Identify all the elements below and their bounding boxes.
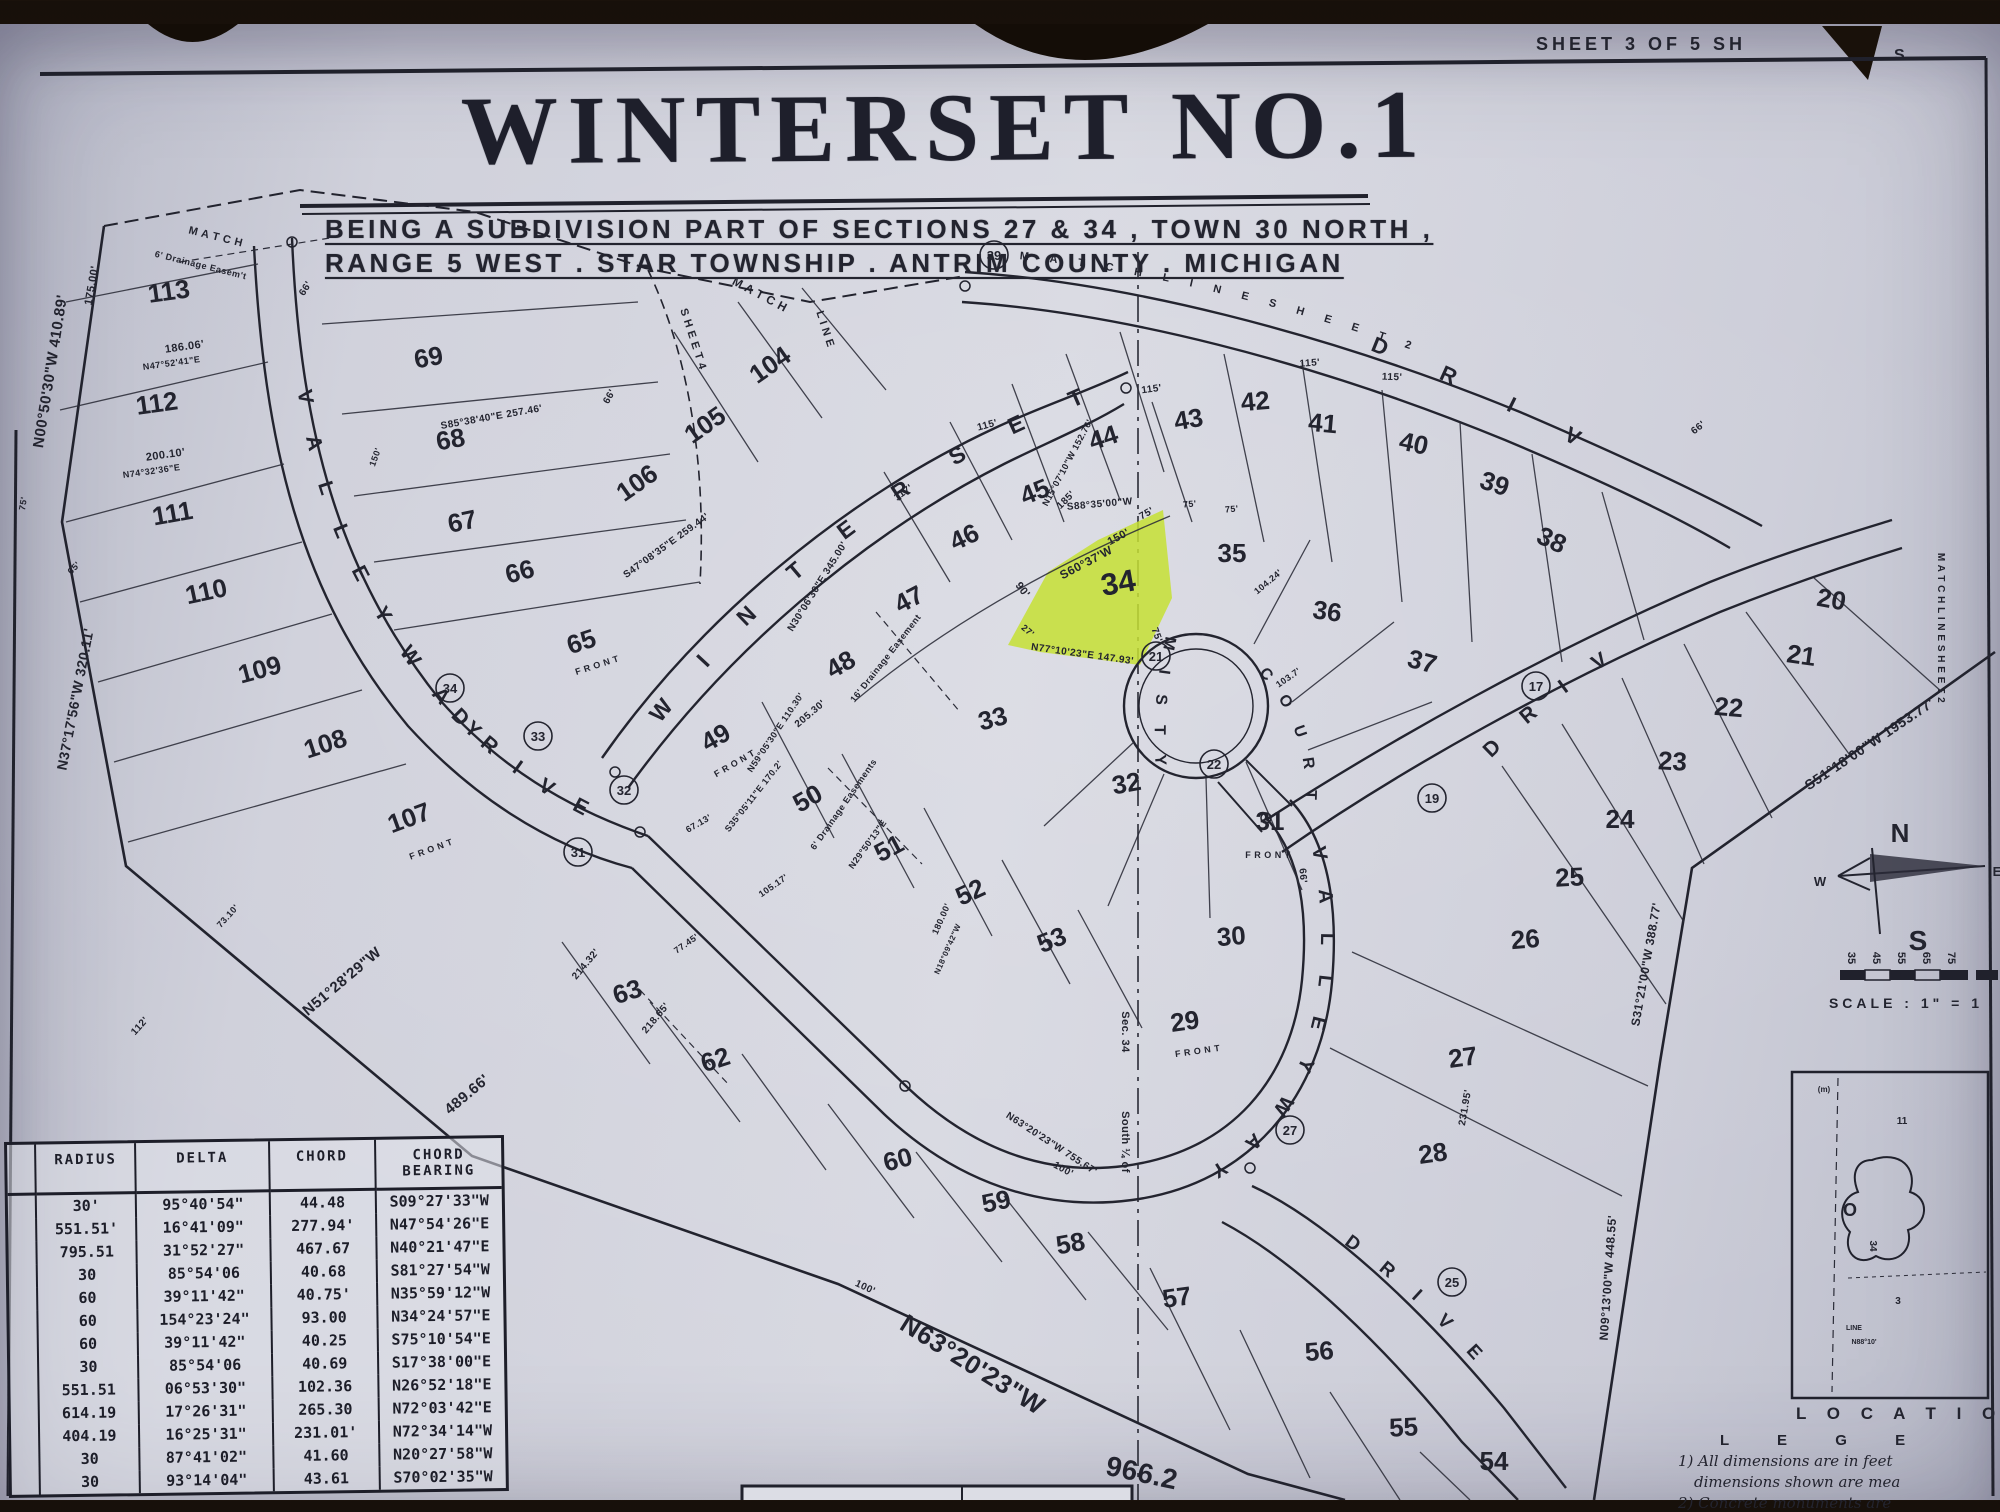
curve-table-cell (10, 1380, 39, 1403)
curve-table-cell: 60 (39, 1332, 140, 1356)
curve-table-cell: S70°02'35"W (380, 1465, 506, 1490)
curve-table-cell: 265.30 (273, 1398, 379, 1422)
curve-table-cell: 39°11'42" (139, 1330, 272, 1355)
lot-number-107: 107 (383, 796, 434, 839)
inset-text: 34 (1867, 1240, 1878, 1252)
curve-marker-34: 34 (443, 681, 458, 696)
curve-table-header-cell: DELTA (136, 1141, 270, 1194)
bottom-partial-box (742, 1486, 1132, 1500)
legend-note-3: 2) Concrete monuments are (1678, 1494, 2000, 1512)
curve-table-cell: 30 (40, 1447, 141, 1471)
lot-number-39: 39 (1476, 465, 1513, 502)
bearing-label: 103.7' (1274, 666, 1302, 690)
lot-number-21: 21 (1785, 638, 1818, 672)
street-label-text: C O U R T (1256, 665, 1319, 808)
curve-marker-39: 39 (987, 248, 1001, 263)
curve-marker-33: 33 (531, 729, 545, 744)
bearing-label: 73.10' (215, 902, 241, 929)
scale-bar: 3545556575 SCALE : 1" = 1 (1829, 952, 1998, 1011)
bearing-label: 115' (1141, 383, 1163, 397)
curve-table-cell: 93.00 (272, 1306, 378, 1330)
legend-note-2: dimensions shown are mea (1694, 1473, 2000, 1491)
bearing-label: S31°21'00"W 388.77' (1628, 901, 1664, 1027)
curve-table-cell: S17°38'00"E (379, 1350, 505, 1375)
lot-number-34: 34 (1098, 562, 1139, 603)
curve-table-cell: 154°23'24" (139, 1307, 272, 1332)
bearing-label: 75' (1225, 503, 1239, 514)
street-label-text: V A L L E Y W A Y (1198, 845, 1338, 1188)
curve-table-cell: 60 (38, 1286, 139, 1310)
bearing-label: 66' (297, 279, 314, 298)
scale-tick-45: 45 (1870, 952, 1882, 964)
curve-table-cell: N34°24'57"E (378, 1304, 504, 1329)
lot-number-112: 112 (134, 385, 180, 421)
lot-number-54: 54 (1480, 1446, 1509, 1476)
street-label-7: D R I V E (1341, 1231, 1494, 1373)
lot-number-58: 58 (1054, 1226, 1088, 1261)
inset-text: N88°10' (1851, 1338, 1876, 1346)
legend-note-1: 1) All dimensions are in feet (1678, 1452, 2000, 1470)
lot-number-25: 25 (1554, 861, 1584, 892)
curve-table-cell: 467.67 (271, 1237, 377, 1261)
bearing-label: 489.66' (441, 1071, 492, 1118)
curve-table-cell: 87°41'02" (141, 1445, 274, 1470)
lot-number-27: 27 (1446, 1040, 1479, 1074)
lot-number-22: 22 (1713, 691, 1744, 723)
bearing-label: S51°18'00"W 1953.77' (1801, 695, 1937, 794)
lot-number-111: 111 (150, 495, 195, 532)
curve-table-header-row: RADIUSDELTACHORDCHORDBEARING (7, 1138, 502, 1196)
lot-number-49: 49 (695, 717, 735, 757)
curve-table-cell (12, 1472, 41, 1495)
curve-table-cell: 60 (38, 1309, 139, 1333)
lot-number-47: 47 (889, 579, 929, 619)
bearing-label: 75' (17, 496, 29, 511)
bearing-label: 67.13' (684, 812, 713, 834)
compass-east-label: E (1993, 864, 2000, 879)
curve-table-cell: 551.51 (39, 1378, 140, 1402)
lot-number-26: 26 (1510, 923, 1541, 955)
curve-table-cell: 39°11'42" (138, 1284, 271, 1309)
curve-table-cell: 551.51' (37, 1217, 138, 1241)
bearing-label: Sec. 34 (1119, 1011, 1131, 1053)
lot-number-113: 113 (146, 273, 192, 309)
curve-table-cell (11, 1403, 40, 1426)
legend-title: L E G E (1720, 1432, 2000, 1449)
curve-table-cell: 102.36 (273, 1375, 379, 1399)
bearing-label: 66' (601, 387, 618, 406)
street-label-9: C O U R T (1256, 665, 1319, 808)
lot-number-106: 106 (610, 458, 663, 507)
folded-corner (1822, 26, 1882, 80)
bearing-label: S88°35'00"W (1066, 496, 1133, 513)
inset-text: LINE (1846, 1325, 1862, 1332)
bearing-label: N74°32'36"E (122, 462, 181, 480)
curve-marker-27: 27 (1283, 1123, 1297, 1138)
curve-table-cell (9, 1288, 38, 1311)
curve-table-cell (10, 1334, 39, 1357)
location-inset: 11(m)O343LINEN88°10' (1792, 1072, 1988, 1398)
lot-number-57: 57 (1160, 1280, 1193, 1314)
legend-notes: L O C A T I O L E G E 1) All dimensions … (1678, 1404, 2000, 1512)
lot-number-23: 23 (1657, 745, 1687, 776)
street-label-text: D R I V E (1341, 1231, 1494, 1373)
lot-number-48: 48 (820, 644, 860, 684)
bearing-label: 77.45' (672, 932, 700, 956)
lot-number-43: 43 (1172, 402, 1206, 437)
lot-number-50: 50 (787, 778, 827, 818)
bearing-label: South ¼ of (1119, 1111, 1131, 1173)
bearing-label: 105.17' (757, 872, 790, 899)
lot-number-55: 55 (1388, 1411, 1418, 1442)
bearing-label: 214.32' (570, 947, 602, 982)
curve-marker-19: 19 (1425, 791, 1439, 806)
curve-table-cell: 404.19 (40, 1424, 141, 1448)
curve-table-header-cell (7, 1145, 37, 1196)
curve-table-cell: N40°21'47"E (377, 1235, 503, 1260)
inset-text-group: 11(m)O343LINEN88°10' (1818, 1085, 1908, 1346)
bearing-label: N63°20'23"W (895, 1308, 1050, 1421)
curve-table-cell: N72°03'42"E (379, 1396, 505, 1421)
lot-number-108: 108 (300, 722, 351, 764)
bearing-label: M A T C H L I N E S H E E T 2 (1935, 553, 1946, 703)
curve-table-cell (8, 1219, 37, 1242)
bearing-label: 115' (1382, 372, 1403, 384)
bearing-label: 65' (66, 560, 83, 577)
curve-table-cell: N35°59'12"W (378, 1281, 504, 1306)
bearing-label: 115' (1299, 357, 1320, 369)
curve-table-cell: 40.69 (273, 1352, 379, 1376)
curve-table-cell: N20°27'58"W (380, 1442, 506, 1467)
lot-number-65: 65 (563, 623, 600, 660)
photo-of-plat: { "page": { "sheet_label": "SHEET 3 OF 5… (0, 0, 2000, 1500)
scale-tick-35: 35 (1845, 952, 1857, 964)
bearing-label: S47°08'35"E 259.44' (622, 511, 712, 580)
lot-number-28: 28 (1416, 1136, 1449, 1170)
curve-table-cell: 40.68 (271, 1260, 377, 1284)
scale-tick-55: 55 (1895, 952, 1907, 964)
lot-number-33: 33 (975, 700, 1011, 736)
scale-tick-75: 75 (1945, 952, 1957, 964)
curve-table-cell: N47°54'26"E (377, 1212, 503, 1237)
curve-table-cell: 277.94' (271, 1214, 377, 1238)
lot-number-60: 60 (880, 1141, 916, 1177)
curve-table-cell (9, 1311, 38, 1334)
street-label-3: M A T C H L I N E S H E E T 2 (1019, 250, 1421, 355)
bearing-label: 16' Drainage Easement (848, 612, 923, 704)
bearing-label: F R O N T (408, 837, 454, 862)
curve-table-cell: 30 (39, 1355, 140, 1379)
compass-rose: N W E S (1814, 818, 2000, 956)
curve-marker-21: 21 (1149, 649, 1163, 664)
lot-number-41: 41 (1307, 407, 1338, 439)
curve-table-cell: 85°54'06 (139, 1353, 272, 1378)
curve-table-cell: 93°14'04" (141, 1468, 274, 1493)
bearing-label: 186.06' (164, 338, 205, 355)
lot-number-52: 52 (951, 872, 990, 911)
lot-number-32: 32 (1110, 766, 1144, 801)
bearing-label: 180.00' (930, 902, 953, 936)
bearing-label: N09°13'00"W 448.55' (1597, 1214, 1620, 1340)
street-label-6: V A L L E Y W A Y (1198, 845, 1338, 1188)
curve-marker-17: 17 (1529, 679, 1543, 694)
curve-table-cell (11, 1449, 40, 1472)
location-title: L O C A T I O (1796, 1404, 2000, 1424)
lot-number-69: 69 (412, 340, 446, 375)
curve-table-cell: 95°40'54" (137, 1192, 270, 1217)
curve-table-cell: 795.51 (38, 1240, 139, 1264)
lot-number-63: 63 (609, 973, 646, 1010)
scale-tick-labels: 3545556575 (1845, 952, 1957, 964)
lot-number-35: 35 (1218, 538, 1247, 568)
lot-number-24: 24 (1606, 804, 1635, 834)
bearing-label: 100' (853, 1278, 877, 1297)
curve-marker-25: 25 (1445, 1275, 1459, 1290)
bearing-label: F R O N T (1245, 850, 1291, 860)
bearing-label: 200.10' (145, 446, 186, 463)
curve-table-cell: 40.75' (272, 1283, 378, 1307)
bearing-label: 175.00' (83, 265, 102, 306)
curve-table-cell: S75°10'54"E (378, 1327, 504, 1352)
curve-table-cell (11, 1426, 40, 1449)
curve-table-cell: N72°34'14"W (380, 1419, 506, 1444)
bearing-label: N37°17'56"W 320.11' (53, 627, 96, 772)
curve-table-cell: 30 (41, 1470, 142, 1494)
bearing-label: S85°38'40"E 257.46' (440, 403, 543, 432)
curve-table-cell: 41.60 (274, 1444, 380, 1468)
street-label-1: D R I V E (447, 704, 601, 825)
curve-table-cell: 06°53'30" (140, 1376, 273, 1401)
curve-table-cell: 44.48 (270, 1191, 376, 1215)
bearing-label: 104.24' (1252, 567, 1284, 596)
inset-text: O (1843, 1200, 1857, 1220)
curve-table-cell: 43.61 (274, 1467, 380, 1491)
lot-number-104: 104 (743, 340, 796, 390)
lot-number-37: 37 (1404, 643, 1440, 679)
scale-tick-65: 65 (1920, 952, 1932, 964)
curve-marker-22: 22 (1207, 757, 1221, 772)
lot-number-29: 29 (1168, 1004, 1201, 1038)
bearing-label: 75' (1183, 498, 1197, 509)
bearing-label: 66' (1689, 419, 1708, 437)
curve-table-cell (10, 1357, 39, 1380)
curve-table-cell: 30 (38, 1263, 139, 1287)
bearing-label: N63°20'23"W 755.67' (1004, 1110, 1099, 1177)
inset-text: 11 (1897, 1116, 1908, 1127)
bearing-label: M A T C H (187, 225, 244, 250)
curve-table-cell: 40.25 (272, 1329, 378, 1353)
lot-number-36: 36 (1311, 594, 1344, 628)
lot-number-30: 30 (1216, 920, 1247, 952)
curve-table-cell: 30' (37, 1194, 138, 1218)
torn-sheet-letter: S (1894, 47, 1905, 64)
curve-table-cell: 614.19 (40, 1401, 141, 1425)
curve-table-cell: 231.01' (274, 1421, 380, 1445)
lot-number-31: 31 (1256, 806, 1285, 836)
lot-number-109: 109 (235, 649, 285, 689)
title-underline-1 (300, 196, 1368, 206)
lot-number-66: 66 (502, 553, 538, 589)
compass-north-label: N (1891, 818, 1910, 848)
lot-number-40: 40 (1397, 426, 1432, 461)
bearing-label: N00°50'30"W 410.89' (30, 293, 71, 449)
compass-west-label: W (1814, 874, 1827, 889)
bearing-label: 66' (1296, 868, 1308, 884)
street-label-text: D R I V E (447, 704, 601, 825)
bearing-label: 231.95' (1457, 1089, 1474, 1127)
curve-table-cell: 31°52'27" (138, 1238, 271, 1263)
curve-table-cell: 16°25'31" (140, 1422, 273, 1447)
curve-table-cell: N26°52'18"E (379, 1373, 505, 1398)
lot-number-67: 67 (445, 504, 480, 539)
curve-table-cell: S09°27'33"W (376, 1189, 502, 1214)
curve-table-header-cell: RADIUS (36, 1143, 137, 1195)
curve-data-table: RADIUSDELTACHORDCHORDBEARING30'95°40'54"… (4, 1135, 509, 1498)
bearing-label: N51°28'29"W (299, 944, 385, 1020)
curve-marker-32: 32 (617, 783, 631, 798)
curve-table-cell: 85°54'06 (138, 1261, 271, 1286)
curve-table-cell (8, 1242, 37, 1265)
inset-text: 3 (1895, 1296, 1901, 1307)
lot-number-42: 42 (1240, 385, 1271, 417)
bearing-label: 150' (367, 446, 383, 467)
lot-number-46: 46 (945, 517, 984, 556)
lot-number-56: 56 (1304, 1335, 1335, 1367)
bearing-label: F R O N T (1174, 1043, 1220, 1059)
curve-table-cell: 17°26'31" (140, 1399, 273, 1424)
curve-table-cell: S81°27'54"W (377, 1258, 503, 1283)
curve-table-cell (9, 1265, 38, 1288)
bearing-label: 112' (129, 1015, 151, 1038)
lot-number-59: 59 (979, 1184, 1014, 1219)
lot-number-20: 20 (1815, 582, 1849, 617)
bearing-label: L I N E (813, 309, 836, 348)
lot-number-110: 110 (182, 572, 229, 610)
curve-marker-31: 31 (571, 845, 585, 860)
bearing-label: M A T C H (730, 274, 790, 315)
scale-label: SCALE : 1" = 1 (1829, 995, 1983, 1011)
curve-table-header-cell: CHORD (270, 1140, 377, 1192)
bearing-label: N47°52'41"E (142, 354, 201, 372)
curve-table-cell (8, 1196, 37, 1219)
inset-text: (m) (1818, 1085, 1831, 1094)
curve-table-header-cell: CHORDBEARING (376, 1138, 502, 1191)
lot-number-38: 38 (1532, 520, 1571, 559)
curve-table-cell: 16°41'09" (138, 1215, 271, 1240)
street-label-text: M A T C H L I N E S H E E T 2 (1019, 250, 1421, 355)
